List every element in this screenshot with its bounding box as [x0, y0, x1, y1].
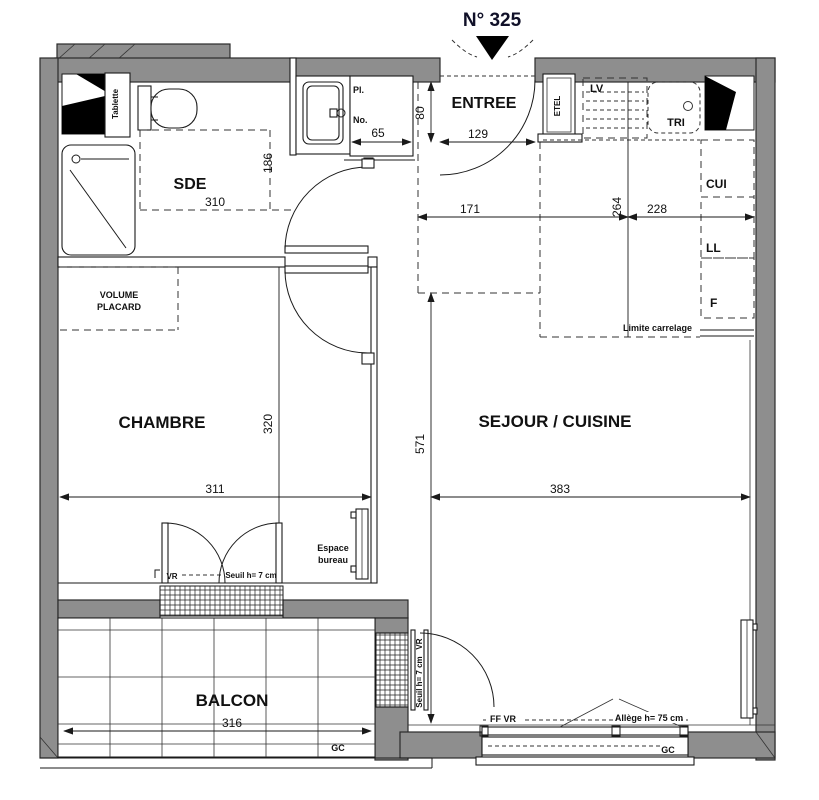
dishwasher-hatch: [586, 92, 644, 128]
kitchen-width-dim: 228: [647, 202, 667, 216]
chambre-balcony-wall-left: [58, 600, 160, 618]
balcony-railing-lines: [40, 758, 432, 768]
entrance-arrow-icon: [476, 36, 509, 60]
interior-doors: [285, 159, 374, 364]
espace-bureau-label-2: bureau: [318, 555, 348, 565]
window-outer-sill: [476, 757, 694, 765]
radiator-valve-bottom: [351, 566, 356, 572]
entree-label: ENTREE: [452, 95, 517, 112]
sejour-balcony-door: VR Seuil h= 7 cm: [376, 630, 494, 710]
chambre-room: VOLUME PLACARD CHAMBRE 311 320 Espace bu…: [60, 267, 371, 583]
entree-depth-dim: 171: [460, 202, 480, 216]
placard-no-label: No.: [353, 115, 368, 125]
chambre-depth-dim: 320: [261, 414, 275, 434]
cooker-label: CUI: [706, 177, 727, 191]
tablette-label: Tablette: [111, 88, 120, 119]
left-wall: [40, 58, 58, 758]
chambre-balcony-wall-right: [283, 600, 408, 618]
sejour-window: GC FF VR Allège h= 75 cm: [476, 699, 694, 765]
sde-door-stop: [362, 159, 374, 168]
allege-label: Allège h= 75 cm: [615, 713, 683, 723]
sde-depth-dim: 186: [261, 153, 275, 173]
entree-zone: Pl. No. 65 ENTREE 129 80: [296, 76, 700, 337]
fridge-label: F: [710, 296, 717, 310]
door-jamb-stub: [368, 257, 377, 267]
chambre-door-swing: [285, 270, 368, 353]
sde-door-swing: [285, 167, 368, 250]
balcon-width-dim: 316: [222, 716, 242, 730]
balcony-floor: [58, 618, 375, 757]
balcon-label: BALCON: [196, 691, 269, 710]
sde-room: Tablette SDE 310 186: [62, 73, 293, 255]
ff-vr-label: FF VR: [490, 714, 516, 724]
toilet-bowl: [151, 89, 197, 128]
floor-plan-drawing: N° 325 Tablette SDE 310 186: [0, 0, 819, 800]
gc-label-fenetre: GC: [661, 745, 675, 755]
volume-placard-label-2: PLACARD: [97, 302, 141, 312]
toilet-tank: [138, 86, 151, 130]
title-block: N° 325: [452, 10, 533, 60]
sejour-door-leaf: [424, 630, 428, 710]
vr-label-chambre: VR: [166, 572, 177, 581]
threshold-hatch-chambre: [160, 586, 283, 616]
sde-width-dim: 310: [205, 195, 225, 209]
sejour-label: SEJOUR / CUISINE: [478, 412, 631, 431]
seuil-label-chambre: Seuil h= 7 cm: [225, 571, 276, 580]
apartment-number: N° 325: [463, 10, 522, 31]
sejour-radiator-valve-top: [753, 624, 757, 630]
espace-bureau-label-1: Espace: [317, 543, 349, 553]
gc-label-balcon: GC: [331, 743, 345, 753]
faucet-handle: [330, 109, 337, 117]
french-door-leaf-right: [276, 523, 282, 583]
sejour-width-dim: 383: [550, 482, 570, 496]
kitchen-depth-dim: 264: [610, 197, 624, 217]
sde-door-leaf: [285, 246, 368, 253]
volume-placard-label-1: VOLUME: [100, 290, 139, 300]
window-frame: [482, 727, 688, 735]
sde-label: SDE: [174, 176, 207, 193]
placard-width-dim: 65: [371, 126, 385, 140]
sde-chambre-partition: [58, 257, 285, 267]
vr-label-sejour: VR: [415, 638, 424, 649]
etel-base: [538, 134, 582, 142]
vr-corner-tick: [155, 570, 160, 578]
floor-plan-page: N° 325 Tablette SDE 310 186: [0, 0, 819, 800]
entry-door-dim: 129: [468, 127, 488, 141]
sejour-radiator-valve-bottom: [753, 708, 757, 714]
limite-carrelage-label: Limite carrelage: [623, 323, 692, 333]
dishwasher-label: LV: [590, 83, 604, 95]
bottom-wall-left-of-window: [400, 732, 482, 758]
tri-label: TRI: [667, 117, 685, 129]
counter-end-lines: [700, 330, 754, 336]
seuil-label-sejour: Seuil h= 7 cm: [415, 656, 424, 707]
sejour-room: SEJOUR / CUISINE 571 383: [413, 293, 757, 723]
arrow-dash-right: [508, 40, 533, 57]
radiator-valve-top: [351, 512, 356, 518]
sde-entree-partition: [290, 58, 296, 155]
etel-label: ETEL: [553, 96, 562, 117]
sejour-depth-dim: 571: [413, 434, 427, 454]
sejour-balcony-wall-top: [375, 618, 408, 633]
right-wall: [756, 58, 775, 760]
chambre-door-stop: [362, 353, 374, 364]
placard-pl-label: Pl.: [353, 85, 364, 95]
chambre-door-leaf: [285, 266, 368, 273]
washer-label: LL: [706, 241, 721, 255]
sink-drain-icon: [684, 102, 693, 111]
hall-dim: 80: [413, 106, 427, 120]
chambre-sejour-partition: [371, 267, 377, 583]
chambre-label: CHAMBRE: [119, 413, 206, 432]
arrow-dash-left: [452, 40, 477, 57]
chambre-width-dim: 311: [205, 482, 224, 496]
chambre-balcony-door: VR Seuil h= 7 cm: [155, 523, 283, 616]
kitchen-zone: ETEL LV TRI CUI LL F Limite carrelage 26…: [418, 74, 754, 337]
fridge-box: [701, 258, 754, 318]
balcony: BALCON 316 GC: [40, 618, 432, 768]
threshold-hatch-sejour: [376, 633, 408, 707]
bottom-wall-right-of-window: [688, 732, 775, 758]
